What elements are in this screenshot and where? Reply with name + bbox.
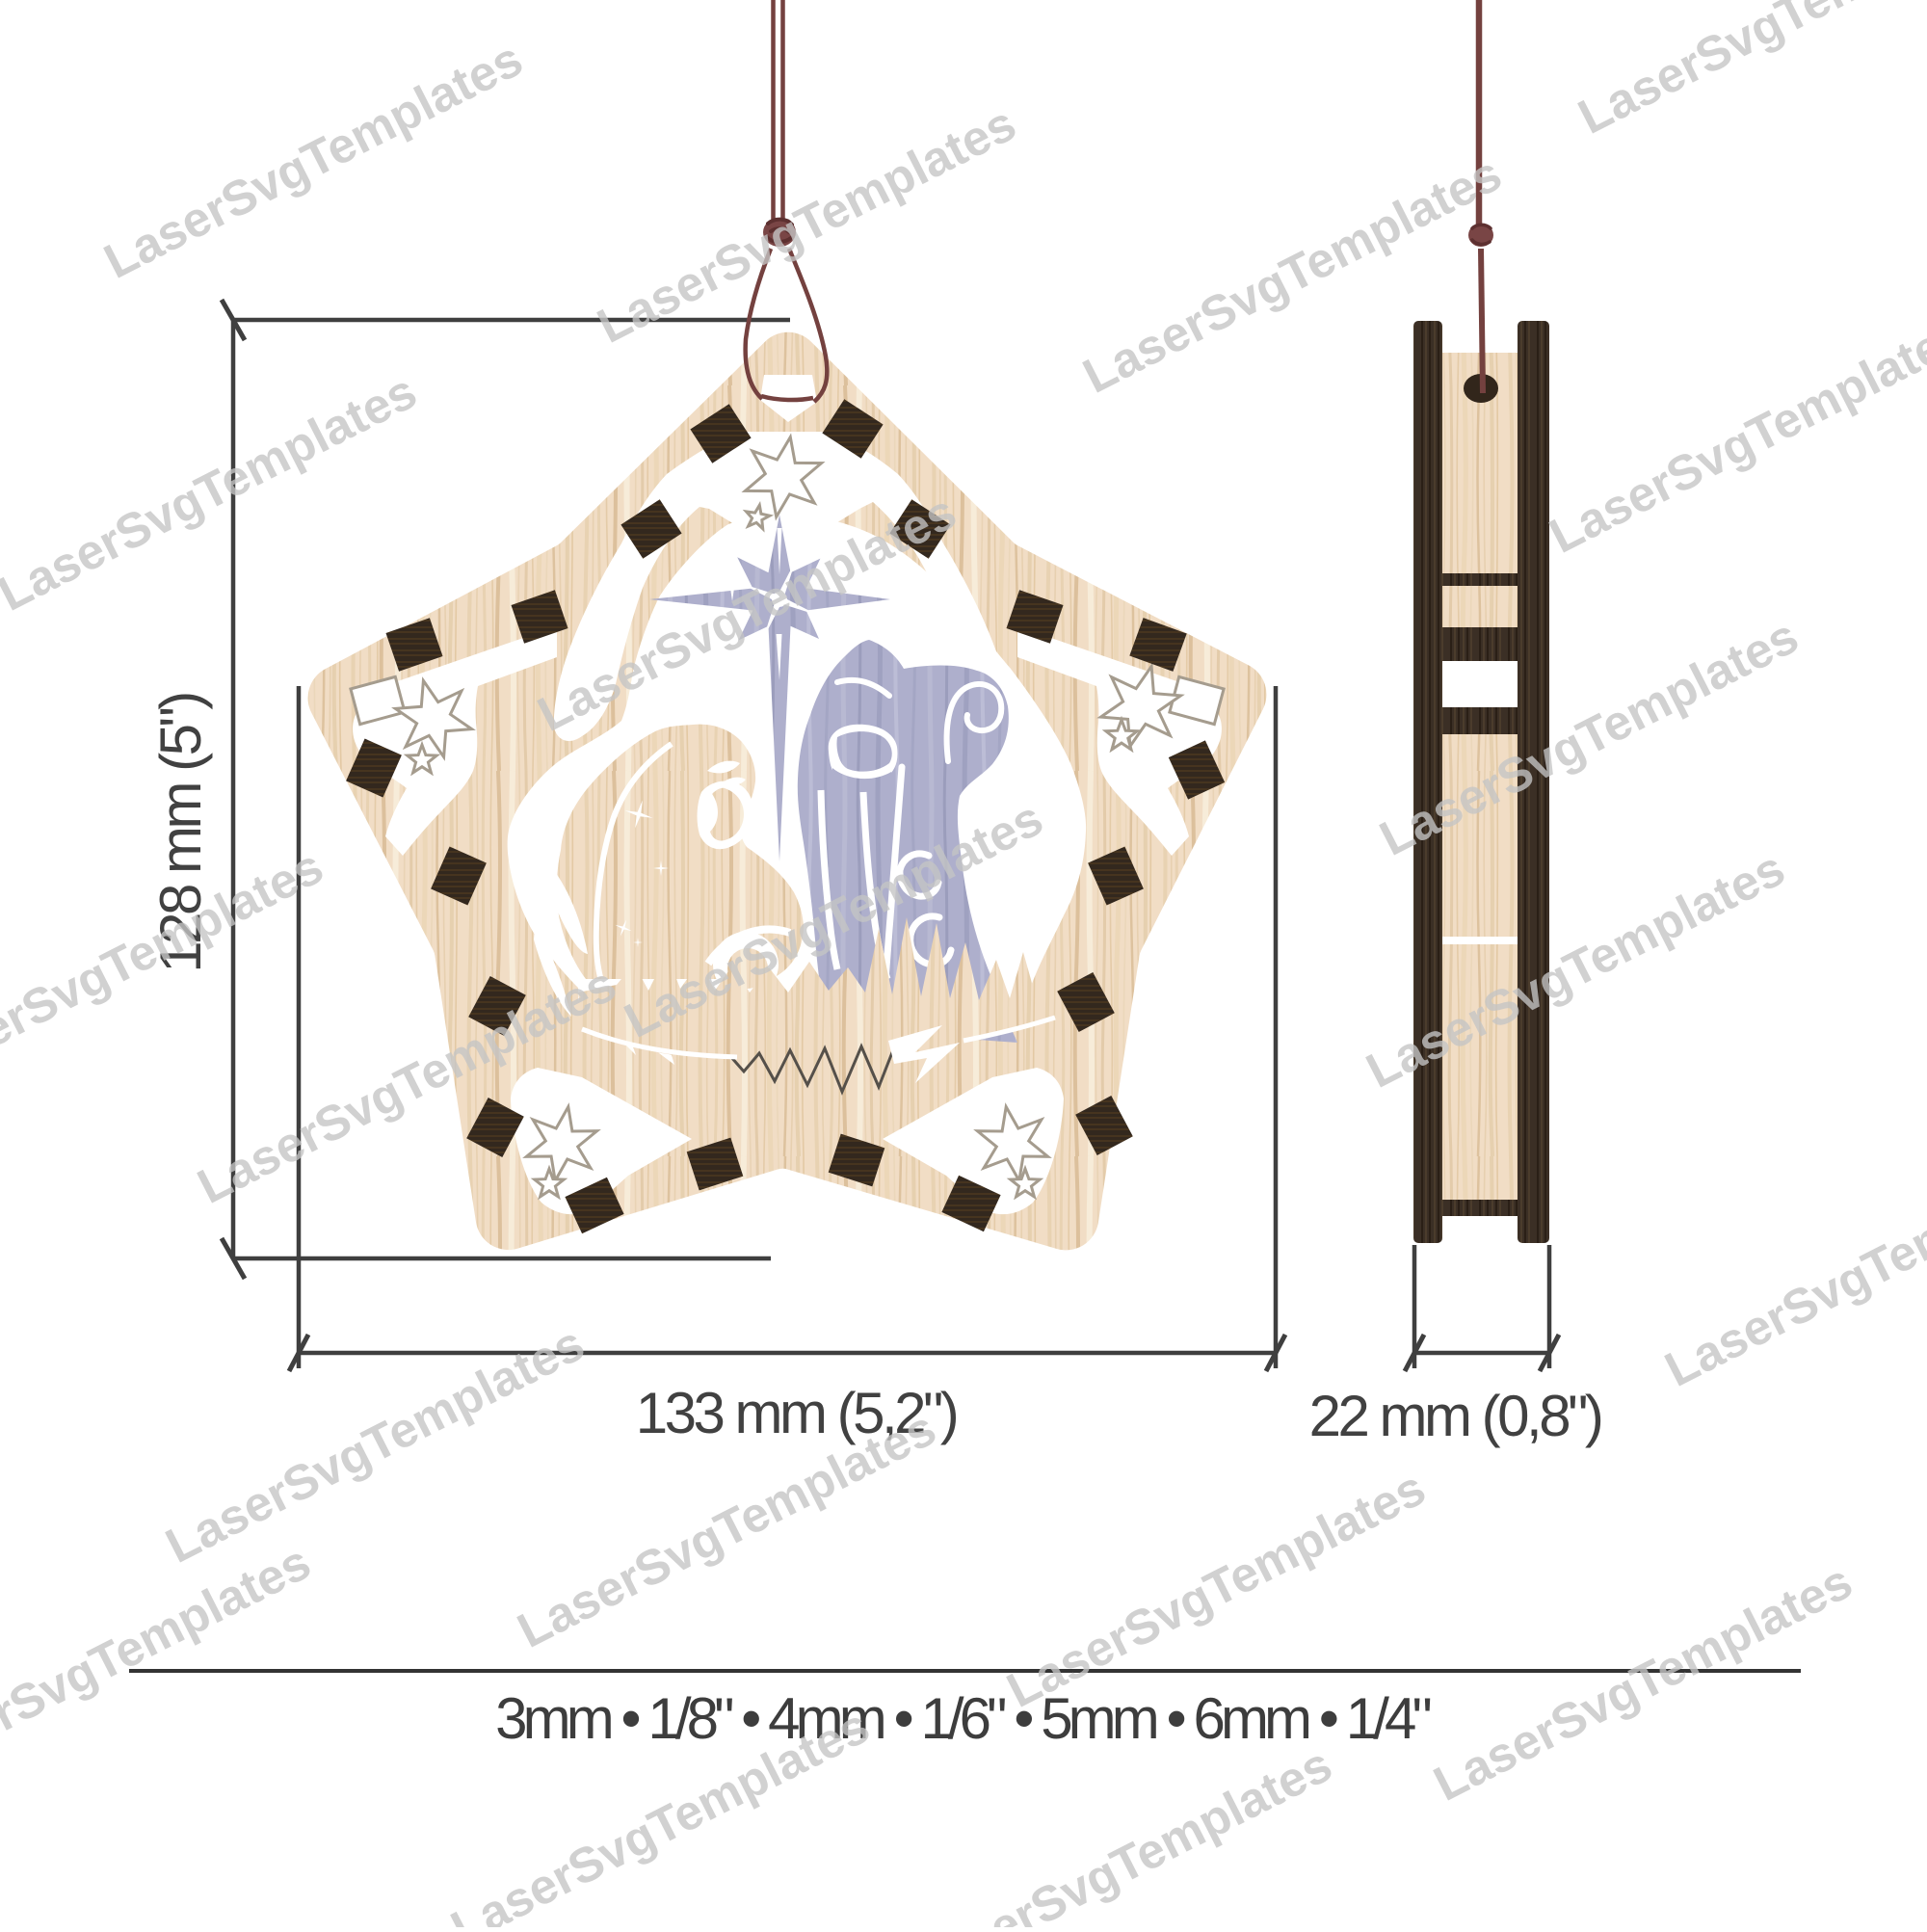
svg-text:LaserSvgTemplates: LaserSvgTemplates [1425,1553,1861,1812]
svg-text:3mm • 1/8" • 4mm • 1/6" • 5mm: 3mm • 1/8" • 4mm • 1/6" • 5mm • 6mm • 1/… [495,1686,1430,1751]
svg-text:LaserSvgTemplates: LaserSvgTemplates [0,1534,319,1792]
svg-text:LaserSvgTemplates: LaserSvgTemplates [905,1736,1340,1927]
svg-text:LaserSvgTemplates: LaserSvgTemplates [95,31,531,289]
svg-text:LaserSvgTemplates: LaserSvgTemplates [0,363,425,622]
svg-text:LaserSvgTemplates: LaserSvgTemplates [589,95,1024,354]
svg-text:LaserSvgTemplates: LaserSvgTemplates [1570,0,1927,145]
svg-text:LaserSvgTemplates: LaserSvgTemplates [1541,305,1927,564]
svg-text:LaserSvgTemplates: LaserSvgTemplates [1656,1139,1927,1397]
svg-text:LaserSvgTemplates: LaserSvgTemplates [998,1460,1434,1718]
svg-text:22 mm (0,8"): 22 mm (0,8") [1309,1384,1601,1448]
